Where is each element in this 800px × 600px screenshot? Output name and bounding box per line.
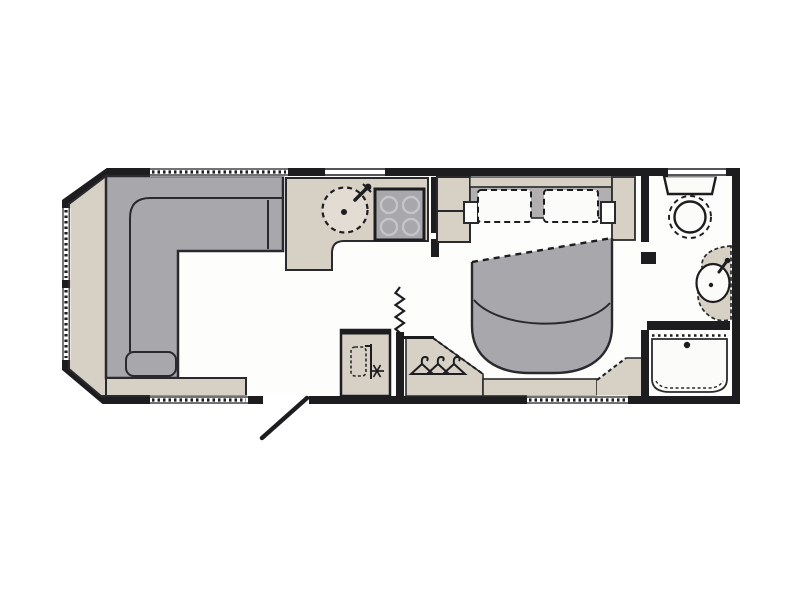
bed-head-shelf [470, 177, 612, 187]
window-bedroom-bottom [527, 396, 628, 405]
window-front-lower [62, 288, 71, 360]
shower [652, 336, 727, 393]
window-kitchen-top [325, 168, 385, 177]
bed-foot-platform [483, 379, 597, 396]
bedside-shelf-left [464, 202, 478, 223]
window-lounge-top [150, 168, 288, 177]
shower-drain [684, 342, 690, 348]
pillow-right [544, 190, 598, 222]
lounge-side-shelf [106, 378, 246, 396]
bedside-shelf-right [601, 202, 615, 223]
sofa-end-cushion [126, 352, 176, 376]
window-washroom-top [668, 168, 726, 177]
washroom-door-jamb [641, 252, 656, 264]
wardrobe-wall-stub [396, 332, 404, 396]
front-parcel-shelf [69, 176, 106, 396]
fridge-cabinet [341, 330, 390, 396]
shower-dividing-wall [647, 321, 730, 330]
window-lounge-bottom [150, 396, 248, 405]
washroom-partition-upper [641, 174, 649, 242]
washroom-partition-lower [641, 330, 649, 398]
pillow-left [478, 190, 531, 222]
basin-drain [709, 283, 713, 287]
sink-drain [341, 209, 347, 215]
caravan-floorplan [0, 0, 800, 600]
toilet-cistern [664, 176, 716, 194]
window-front-upper [62, 208, 71, 280]
wash-basin [697, 264, 730, 302]
toilet-bowl [675, 202, 706, 233]
